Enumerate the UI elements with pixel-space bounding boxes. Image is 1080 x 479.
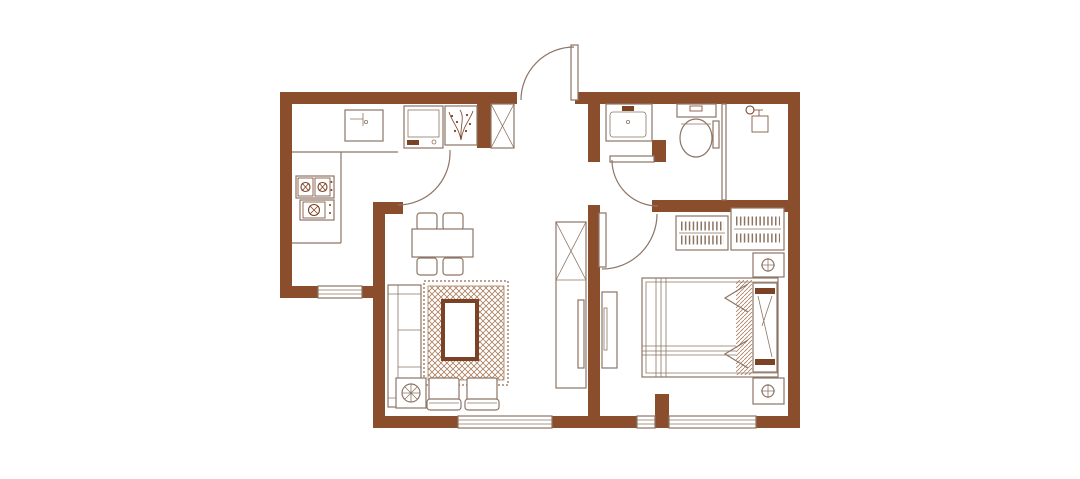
entry-hall [404,104,514,148]
wall [373,416,458,428]
bathroom-door [610,156,658,206]
washing-machine [404,106,443,148]
gas-stove-single-burner [300,200,334,220]
headboard [753,283,777,372]
wall-kitchen-door-stub [385,202,403,214]
bathroom-vanity [606,104,652,141]
nightstand-lamp-bottom [753,378,784,404]
kitchen-window [318,286,362,298]
floor-plan-drawing [0,0,1080,479]
wall-window-pier [655,394,669,428]
shoe-cabinet [491,104,514,148]
wall [575,92,800,104]
bedroom [602,208,784,404]
wall [756,416,800,428]
double-bed [642,278,778,377]
nightstand-lamp-top [753,253,784,277]
shower-head [746,106,768,132]
wall [552,416,637,428]
bathroom [606,104,768,200]
wall-right [788,92,800,428]
wardrobe-right [731,208,784,250]
wall-divider-living-bedroom [588,205,600,428]
wall-entry-cabinet-stub [477,104,491,148]
kitchen-door [398,150,450,205]
gas-stove-two-burner [296,176,334,198]
floor-plan [0,0,1080,479]
wall [280,286,318,298]
living-window [458,416,552,428]
wall [280,92,292,298]
plant-box [445,106,477,145]
floor-plant [396,378,426,408]
shower-partition [722,104,726,200]
toilet [677,104,719,157]
dining-table [412,229,473,257]
tv-console-bedroom [602,292,617,368]
bedroom-window [669,416,756,428]
tv-cabinet-living [556,222,586,388]
armchair [427,378,461,410]
wall-bathroom-left [588,104,600,162]
kitchen-sink [345,110,383,141]
armchair [465,378,499,410]
area-rug [424,281,508,385]
bedroom-door [599,213,657,269]
wardrobe-left [676,216,728,250]
wall [280,92,517,104]
wall [373,202,385,428]
bed-hatch-strip [736,280,752,375]
living-dining [388,213,586,410]
entry-door [521,45,578,100]
bedroom-window-left [637,416,655,428]
